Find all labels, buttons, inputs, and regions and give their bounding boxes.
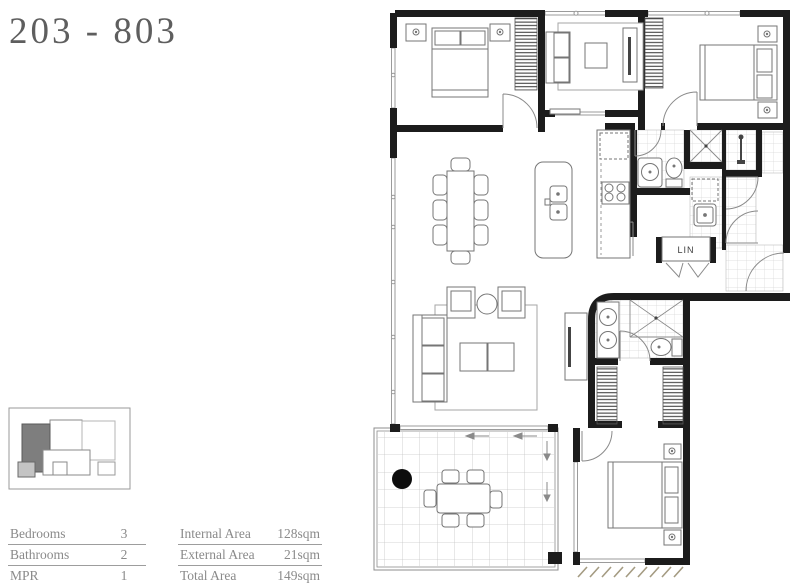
stat-value: 2 xyxy=(104,547,144,563)
mpr-cavity-slider xyxy=(550,109,605,115)
bedroom2-wardrobe xyxy=(515,18,537,90)
stat-row: Bedrooms 3 xyxy=(8,524,146,545)
pillow xyxy=(461,31,485,45)
pillow xyxy=(435,31,460,45)
stat-row: Total Area 149sqm xyxy=(178,566,322,586)
stat-value: 1 xyxy=(104,568,144,584)
stat-label: Total Area xyxy=(180,568,262,584)
stat-label: External Area xyxy=(180,547,262,563)
tv-unit xyxy=(565,313,587,380)
stat-label: MPR xyxy=(10,568,104,584)
dining-chair xyxy=(474,225,488,245)
bedroom3-furniture xyxy=(608,444,682,545)
stat-label: Bathrooms xyxy=(10,547,104,563)
balcony xyxy=(374,428,562,570)
tv xyxy=(628,37,631,75)
stat-row: External Area 21sqm xyxy=(178,545,322,566)
side-table xyxy=(477,294,497,314)
wir-robe-right xyxy=(663,367,683,424)
faucet xyxy=(545,199,550,205)
pillow xyxy=(757,49,772,72)
toilet xyxy=(651,339,682,357)
floor-plan: LIN xyxy=(0,0,800,586)
stat-label: Bedrooms xyxy=(10,526,104,542)
dining-chair xyxy=(451,251,470,264)
stat-value: 21sqm xyxy=(262,547,320,563)
coffee-table xyxy=(460,343,487,371)
keyplan-footprint xyxy=(18,420,115,477)
pillow xyxy=(665,467,678,493)
unit-stats-table: Bedrooms 3 Bathrooms 2 MPR 1 xyxy=(8,524,146,586)
balcony-column xyxy=(392,469,412,489)
armchair xyxy=(498,287,525,318)
kitchen xyxy=(535,130,630,258)
floorplan-page: 203 - 803 xyxy=(0,0,800,586)
bedroom2-furniture xyxy=(406,24,510,97)
dining-chair xyxy=(451,158,470,171)
stat-value: 149sqm xyxy=(262,568,320,584)
ottoman xyxy=(585,43,607,68)
living-furniture xyxy=(413,287,587,410)
dining-chair xyxy=(433,175,447,195)
bedroom1-wardrobe xyxy=(645,18,663,88)
wir-robe-left xyxy=(597,367,617,424)
dining-chair xyxy=(474,175,488,195)
linen-label: LIN xyxy=(677,245,694,255)
stat-value: 128sqm xyxy=(262,526,320,542)
stat-label: Internal Area xyxy=(180,526,262,542)
stat-row: Bathrooms 2 xyxy=(8,545,146,566)
area-stats-table: Internal Area 128sqm External Area 21sqm… xyxy=(178,524,322,586)
pillow xyxy=(665,497,678,523)
stat-value: 3 xyxy=(104,526,144,542)
dining-set xyxy=(433,158,488,264)
linen-bifold-doors xyxy=(666,263,709,277)
sofa xyxy=(413,315,447,402)
dining-chair xyxy=(433,225,447,245)
coffee-table xyxy=(488,343,514,371)
stat-row: MPR 1 xyxy=(8,566,146,586)
dining-chair xyxy=(474,200,488,220)
armchair xyxy=(447,287,475,318)
dining-table xyxy=(447,171,474,251)
dining-chair xyxy=(433,200,447,220)
tv xyxy=(568,327,571,367)
toilet xyxy=(666,158,682,187)
keyplan-secondary-area xyxy=(18,462,35,477)
bedroom1-furniture xyxy=(700,26,777,118)
key-plan xyxy=(8,407,132,491)
stat-row: Internal Area 128sqm xyxy=(178,524,322,545)
pillow xyxy=(757,75,772,98)
boundary-hatch xyxy=(578,567,683,577)
mpr-furniture xyxy=(546,23,643,90)
linen-cupboard: LIN xyxy=(662,237,710,261)
